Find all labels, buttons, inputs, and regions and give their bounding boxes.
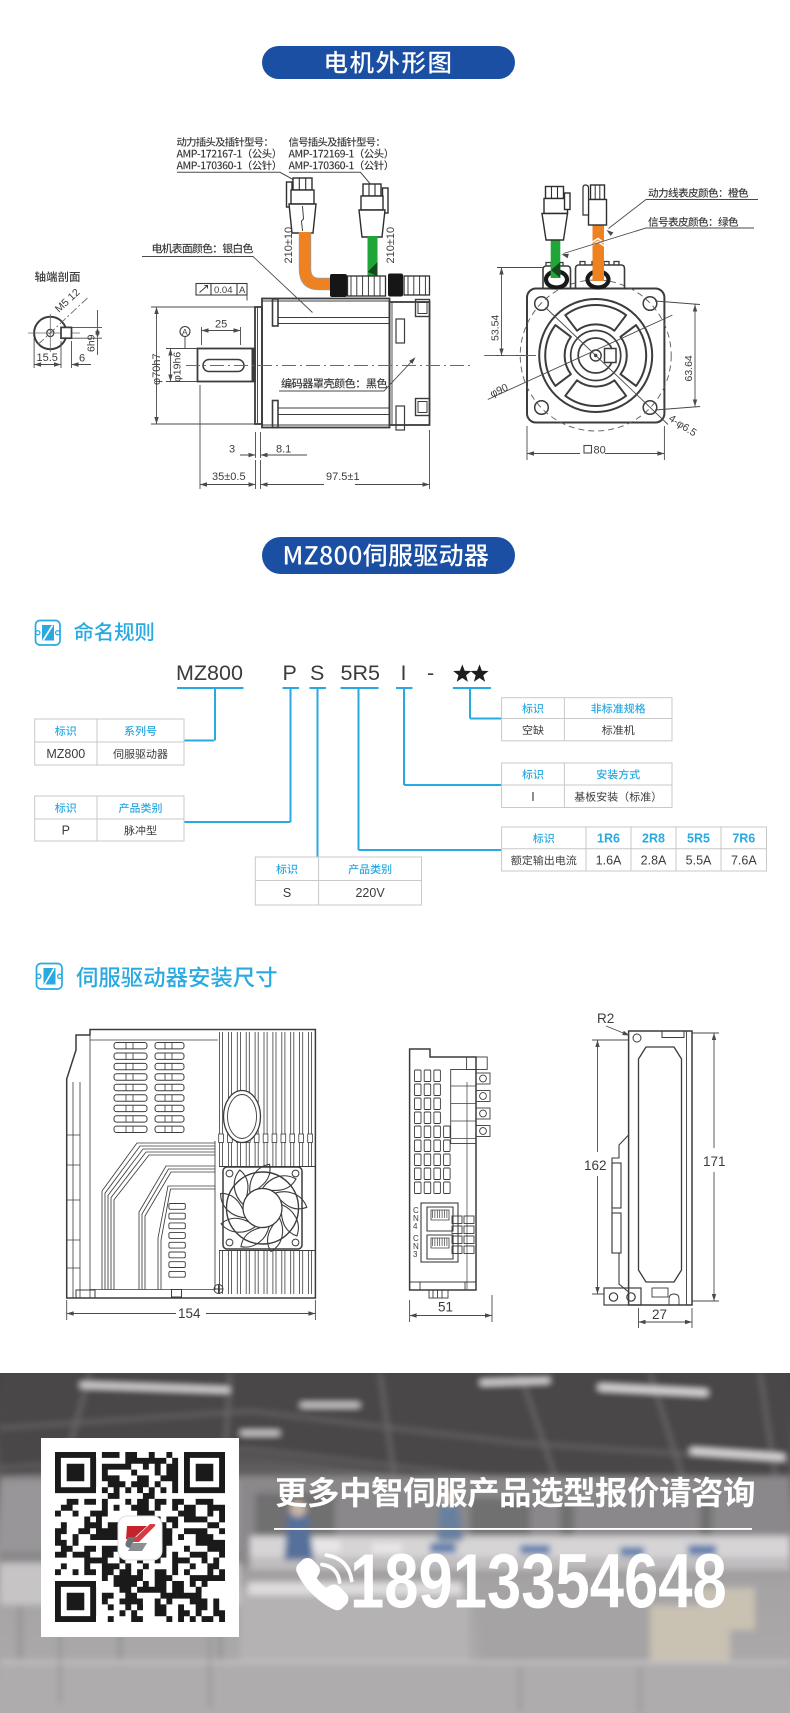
svg-text:18913354648: 18913354648 — [350, 1538, 727, 1624]
svg-text:1R6: 1R6 — [597, 831, 620, 845]
svg-text:R2: R2 — [597, 1011, 614, 1026]
svg-text:27: 27 — [652, 1307, 667, 1322]
svg-text:P: P — [62, 824, 70, 838]
svg-text:-: - — [427, 661, 434, 685]
svg-text:80: 80 — [594, 445, 606, 457]
svg-text:3: 3 — [413, 1250, 418, 1259]
svg-text:5.5A: 5.5A — [686, 853, 712, 867]
svg-text:171: 171 — [703, 1154, 726, 1169]
svg-text:MZ800: MZ800 — [176, 661, 243, 685]
svg-text:15.5: 15.5 — [37, 352, 58, 364]
svg-text:A: A — [239, 285, 246, 296]
svg-text:210±10: 210±10 — [385, 227, 397, 264]
svg-text:4: 4 — [413, 1222, 418, 1231]
svg-text:7R6: 7R6 — [732, 831, 755, 845]
svg-text:63.64: 63.64 — [683, 355, 695, 381]
svg-text:25: 25 — [215, 319, 227, 331]
svg-text:2.8A: 2.8A — [641, 853, 667, 867]
svg-text:I: I — [531, 790, 534, 804]
svg-text:S: S — [310, 661, 324, 685]
svg-text:1.6A: 1.6A — [596, 853, 622, 867]
svg-text:35±0.5: 35±0.5 — [212, 471, 246, 483]
svg-text:φ19h6: φ19h6 — [172, 352, 184, 382]
svg-text:φ90: φ90 — [488, 382, 510, 401]
svg-text:162: 162 — [584, 1158, 607, 1173]
svg-text:P: P — [283, 661, 297, 685]
svg-text:MZ800: MZ800 — [46, 747, 85, 761]
svg-text:φ70h7: φ70h7 — [151, 353, 163, 385]
svg-text:51: 51 — [438, 1300, 453, 1315]
svg-text:8.1: 8.1 — [276, 444, 291, 456]
svg-text:0.04: 0.04 — [214, 285, 233, 296]
svg-text:154: 154 — [178, 1306, 201, 1321]
svg-text:5R5: 5R5 — [341, 661, 380, 685]
svg-text:I: I — [401, 661, 407, 685]
svg-text:2R8: 2R8 — [642, 831, 665, 845]
svg-text:220V: 220V — [355, 886, 385, 900]
svg-text:A: A — [182, 327, 188, 337]
svg-text:53.54: 53.54 — [490, 315, 502, 341]
svg-text:3: 3 — [229, 444, 235, 456]
svg-text:M5 12: M5 12 — [53, 286, 83, 315]
svg-text:5R5: 5R5 — [687, 831, 710, 845]
svg-text:7.6A: 7.6A — [731, 853, 757, 867]
svg-text:4-φ6.5: 4-φ6.5 — [666, 412, 698, 439]
svg-text:6h9: 6h9 — [86, 334, 98, 352]
svg-text:210±10: 210±10 — [283, 227, 295, 264]
svg-text:97.5±1: 97.5±1 — [326, 471, 360, 483]
svg-text:S: S — [283, 886, 291, 900]
svg-text:6: 6 — [79, 353, 85, 365]
